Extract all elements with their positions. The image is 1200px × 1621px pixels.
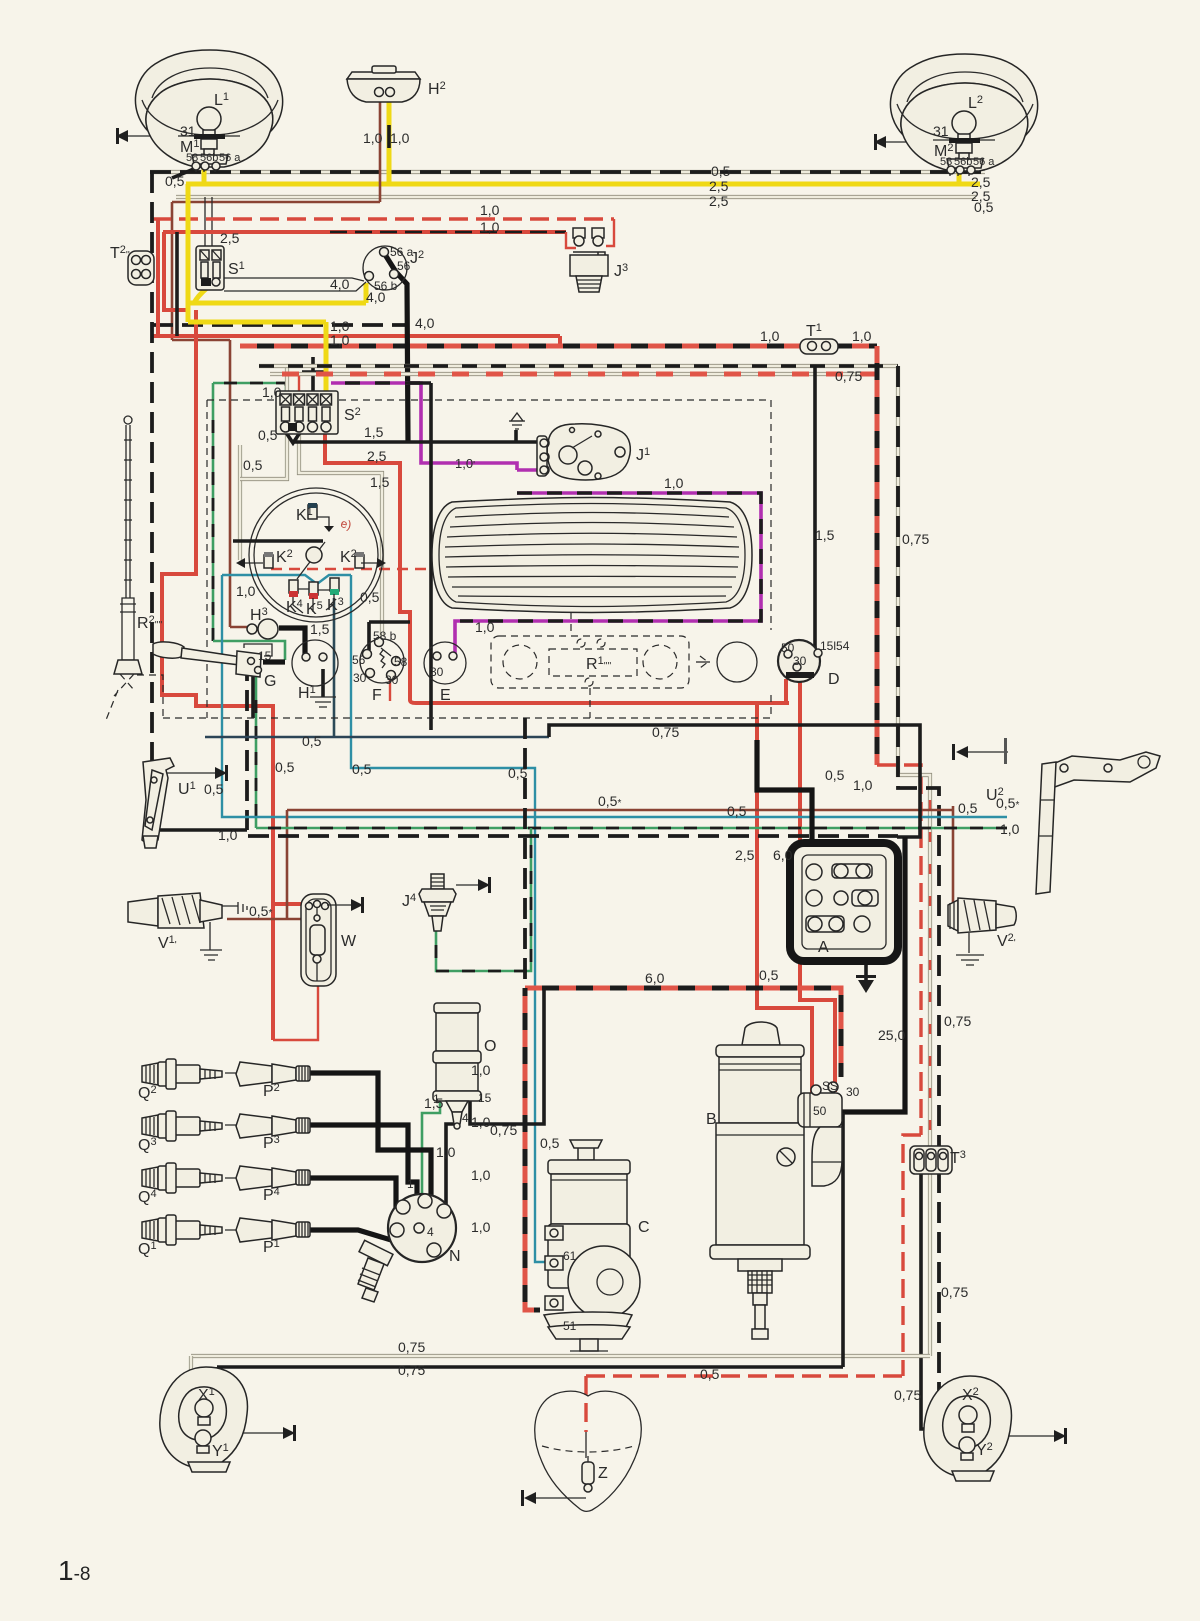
svg-text:1,0: 1,0 [471,1114,491,1130]
svg-text:0,5: 0,5 [258,427,278,443]
svg-text:0,5: 0,5 [508,765,528,781]
svg-text:1,0: 1,0 [480,202,500,218]
svg-text:1,0: 1,0 [363,130,383,146]
svg-text:1,5: 1,5 [370,474,390,490]
svg-text:0,5: 0,5 [165,173,185,189]
svg-text:0,75: 0,75 [490,1122,517,1138]
svg-text:0,5: 0,5 [360,589,380,605]
svg-text:6,0: 6,0 [645,970,665,986]
svg-text:1,0: 1,0 [218,827,238,843]
svg-text:1,0: 1,0 [475,619,495,635]
svg-text:1,0: 1,0 [471,1062,491,1078]
svg-text:0,75: 0,75 [944,1013,971,1029]
svg-text:0,5: 0,5 [958,800,978,816]
svg-text:F: F [372,687,382,704]
svg-text:SS: SS [822,1079,838,1093]
svg-text:1,0: 1,0 [330,332,350,348]
svg-text:1,0: 1,0 [436,1144,456,1160]
svg-text:1,0: 1,0 [853,777,873,793]
svg-text:0,5: 0,5 [759,967,779,983]
svg-text:0,5: 0,5 [302,733,322,749]
svg-text:30: 30 [846,1085,860,1099]
svg-text:30: 30 [353,671,367,685]
svg-text:61: 61 [563,1249,577,1263]
svg-text:0,5: 0,5 [727,803,747,819]
svg-text:31: 31 [180,123,196,139]
svg-text:1,0: 1,0 [236,583,256,599]
svg-text:B: B [706,1111,717,1128]
svg-text:1,0: 1,0 [852,328,872,344]
svg-text:0,75: 0,75 [398,1339,425,1355]
svg-text:1,0: 1,0 [471,1167,491,1183]
svg-text:A: A [818,939,829,956]
svg-text:56 a: 56 a [219,152,241,164]
svg-text:0,5: 0,5 [825,767,845,783]
svg-text:V2': V2' [997,932,1016,950]
svg-text:58: 58 [186,152,198,164]
svg-text:0,75: 0,75 [941,1284,968,1300]
svg-text:15: 15 [258,649,272,663]
svg-text:1,0: 1,0 [1000,821,1020,837]
svg-text:56: 56 [352,653,366,667]
svg-text:0,5: 0,5 [352,761,372,777]
svg-text:1,5: 1,5 [364,424,384,440]
svg-text:56: 56 [397,259,411,273]
svg-text:0,75: 0,75 [902,531,929,547]
svg-text:58 b: 58 b [373,629,397,643]
svg-text:1,0: 1,0 [262,384,282,400]
svg-text:G: G [264,673,276,690]
svg-text:D: D [828,671,840,688]
svg-text:1: 1 [407,1177,414,1191]
svg-text:4: 4 [462,1111,469,1125]
svg-text:50: 50 [813,1104,827,1118]
svg-text:6,0: 6,0 [773,847,793,863]
svg-text:30: 30 [793,654,807,668]
svg-text:56b: 56b [200,152,218,164]
svg-text:30: 30 [385,673,399,687]
svg-text:0,5: 0,5 [711,163,731,179]
svg-text:2,5: 2,5 [735,847,755,863]
svg-text:30: 30 [430,665,444,679]
svg-text:0,5: 0,5 [540,1135,560,1151]
svg-text:4,0: 4,0 [330,276,350,292]
svg-text:0,5: 0,5 [275,759,295,775]
svg-text:1,0': 1,0' [455,456,475,471]
svg-text:25,0: 25,0 [878,1027,905,1043]
svg-text:1,5: 1,5 [310,621,330,637]
svg-text:1,0: 1,0 [664,475,684,491]
svg-text:51: 51 [563,1319,577,1333]
svg-text:4: 4 [427,1225,434,1239]
svg-text:58: 58 [394,655,408,669]
svg-text:0,75: 0,75 [398,1362,425,1378]
svg-text:1,0: 1,0 [760,328,780,344]
svg-text:58: 58 [940,156,952,168]
svg-text:2,5: 2,5 [971,188,991,204]
svg-text:0,75: 0,75 [835,368,862,384]
svg-text:4,0: 4,0 [366,289,386,305]
svg-text:15l54: 15l54 [820,639,850,653]
svg-text:4,0: 4,0 [415,315,435,331]
svg-text:2,5: 2,5 [367,448,387,464]
svg-text:2,5: 2,5 [220,230,240,246]
svg-text:V1': V1' [158,934,177,952]
svg-text:50: 50 [781,641,795,655]
svg-text:O: O [484,1038,496,1055]
svg-text:2,5: 2,5 [709,193,729,209]
svg-text:1,5: 1,5 [815,527,835,543]
svg-text:C: C [638,1219,650,1236]
svg-text:Z: Z [598,1465,608,1482]
svg-text:56 a: 56 a [390,245,414,259]
svg-text:W: W [341,933,357,950]
svg-text:E: E [440,687,451,704]
svg-text:56b: 56b [954,156,972,168]
svg-text:0,75: 0,75 [894,1387,921,1403]
svg-text:0,5: 0,5 [204,781,224,797]
svg-text:0,5: 0,5 [700,1366,720,1382]
svg-text:15: 15 [478,1091,492,1105]
svg-text:1,0: 1,0 [480,219,500,235]
svg-text:0,75: 0,75 [652,724,679,740]
svg-text:2,5: 2,5 [709,178,729,194]
svg-text:1: 1 [433,1092,440,1106]
svg-text:1,0: 1,0 [390,130,410,146]
svg-text:56 a: 56 a [973,156,995,168]
svg-text:31: 31 [933,123,949,139]
svg-text:1,0: 1,0 [471,1219,491,1235]
svg-text:0,5: 0,5 [243,457,263,473]
svg-text:N: N [449,1248,461,1265]
